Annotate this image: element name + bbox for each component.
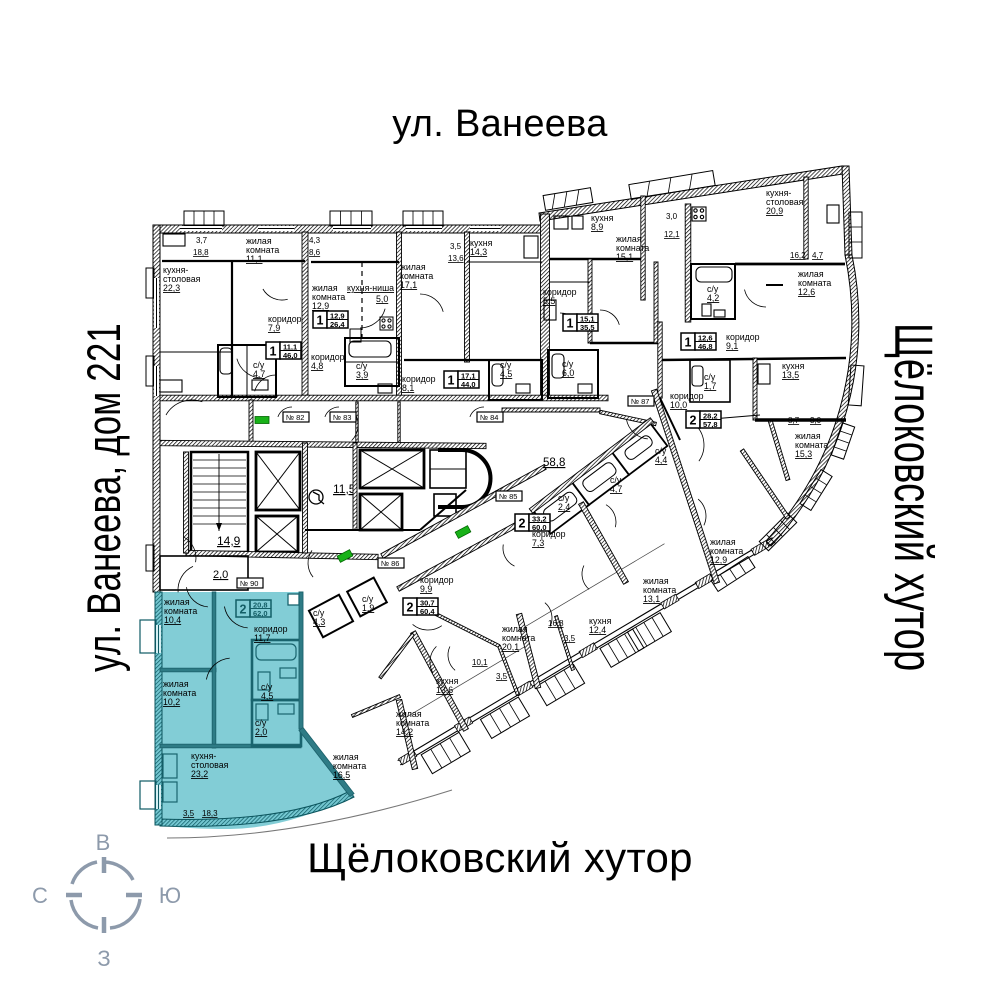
svg-text:18,3: 18,3 — [202, 809, 218, 818]
svg-text:2,0: 2,0 — [213, 569, 228, 581]
svg-text:58,8: 58,8 — [543, 457, 565, 469]
svg-text:6,0: 6,0 — [562, 368, 574, 378]
svg-text:2,4: 2,4 — [558, 502, 570, 512]
svg-text:15,3: 15,3 — [795, 449, 812, 459]
svg-text:12,9: 12,9 — [312, 301, 329, 311]
svg-text:14,2: 14,2 — [396, 727, 413, 737]
svg-text:60,4: 60,4 — [420, 607, 435, 616]
svg-text:1: 1 — [567, 317, 574, 331]
svg-text:Щёлоковский хутор: Щёлоковский хутор — [883, 323, 943, 671]
svg-text:№ 86: № 86 — [381, 559, 399, 568]
svg-text:44,0: 44,0 — [461, 380, 476, 389]
svg-text:20,9: 20,9 — [766, 206, 783, 216]
svg-text:12,4: 12,4 — [589, 625, 606, 635]
svg-text:№ 90: № 90 — [240, 579, 258, 588]
svg-text:60,0: 60,0 — [532, 523, 547, 532]
svg-text:3,0: 3,0 — [666, 212, 678, 221]
svg-text:22,3: 22,3 — [163, 283, 180, 293]
svg-text:В: В — [96, 830, 111, 855]
svg-text:10,2: 10,2 — [163, 697, 180, 707]
svg-text:11,7: 11,7 — [254, 633, 271, 643]
svg-text:З: З — [97, 946, 110, 971]
svg-text:№ 82: № 82 — [286, 413, 304, 422]
svg-text:8,7: 8,7 — [788, 416, 800, 425]
svg-text:8,9: 8,9 — [591, 222, 603, 232]
svg-text:4,5: 4,5 — [261, 691, 273, 701]
svg-text:4,7: 4,7 — [812, 251, 824, 260]
svg-text:3,5: 3,5 — [496, 672, 508, 681]
svg-text:ул. Ванеева, дом 221: ул. Ванеева, дом 221 — [78, 323, 130, 672]
svg-text:Ю: Ю — [159, 883, 181, 908]
svg-text:2,0: 2,0 — [255, 727, 267, 737]
svg-text:2: 2 — [519, 517, 526, 531]
svg-text:12,6: 12,6 — [798, 287, 815, 297]
svg-text:23,2: 23,2 — [191, 769, 208, 779]
svg-text:4,2: 4,2 — [707, 293, 719, 303]
svg-text:3,7: 3,7 — [196, 236, 208, 245]
svg-text:46,8: 46,8 — [698, 342, 713, 351]
svg-text:1: 1 — [685, 336, 692, 350]
svg-text:9,1: 9,1 — [726, 341, 738, 351]
svg-text:2: 2 — [240, 603, 247, 617]
svg-text:Щёлоковский хутор: Щёлоковский хутор — [307, 834, 693, 881]
svg-text:16,5: 16,5 — [333, 770, 350, 780]
svg-text:1: 1 — [448, 374, 455, 388]
svg-text:3,5: 3,5 — [564, 634, 576, 643]
svg-text:13,5: 13,5 — [782, 370, 799, 380]
svg-text:12,9: 12,9 — [710, 555, 727, 565]
svg-text:10,0: 10,0 — [670, 400, 687, 410]
svg-text:5,0: 5,0 — [376, 294, 388, 304]
svg-text:1: 1 — [270, 345, 277, 359]
svg-text:9,9: 9,9 — [420, 584, 432, 594]
svg-text:13,6: 13,6 — [436, 685, 453, 695]
svg-text:12,1: 12,1 — [664, 230, 680, 239]
svg-text:62,0: 62,0 — [253, 609, 268, 618]
svg-text:11,5: 11,5 — [333, 482, 356, 496]
svg-text:1,7: 1,7 — [704, 381, 716, 391]
svg-text:4,5: 4,5 — [500, 369, 512, 379]
svg-text:3,5: 3,5 — [183, 809, 195, 818]
svg-text:3,5: 3,5 — [450, 242, 462, 251]
svg-text:15,1: 15,1 — [616, 252, 633, 262]
svg-text:№ 83: № 83 — [333, 413, 351, 422]
svg-text:2: 2 — [407, 601, 414, 615]
svg-text:57,8: 57,8 — [703, 420, 718, 429]
svg-text:№ 87: № 87 — [631, 397, 649, 406]
svg-text:35,5: 35,5 — [580, 323, 595, 332]
svg-text:7,3: 7,3 — [532, 538, 544, 548]
svg-text:№ 84: № 84 — [480, 413, 498, 422]
svg-text:8,6: 8,6 — [309, 248, 321, 257]
svg-text:С: С — [32, 883, 48, 908]
svg-text:11,1: 11,1 — [246, 254, 263, 264]
svg-text:10,1: 10,1 — [472, 658, 488, 667]
svg-text:2: 2 — [690, 414, 697, 428]
svg-text:26,4: 26,4 — [330, 320, 345, 329]
svg-text:4,7: 4,7 — [610, 484, 622, 494]
svg-text:14,3: 14,3 — [470, 247, 487, 257]
svg-text:4,7: 4,7 — [253, 369, 265, 379]
svg-text:3,9: 3,9 — [356, 370, 368, 380]
svg-text:16,2: 16,2 — [790, 251, 806, 260]
svg-text:13,6: 13,6 — [448, 254, 464, 263]
svg-text:46,0: 46,0 — [283, 351, 298, 360]
svg-text:кухня-ниша: кухня-ниша — [347, 283, 394, 293]
svg-text:17,1: 17,1 — [400, 280, 417, 290]
svg-text:14,9: 14,9 — [217, 534, 241, 548]
svg-text:4,4: 4,4 — [655, 455, 667, 465]
svg-text:7,9: 7,9 — [268, 323, 280, 333]
svg-text:5,5: 5,5 — [543, 296, 555, 306]
svg-text:20,1: 20,1 — [502, 642, 519, 652]
svg-text:18,8: 18,8 — [193, 248, 209, 257]
svg-text:10,4: 10,4 — [164, 615, 181, 625]
svg-text:13,1: 13,1 — [643, 594, 660, 604]
svg-text:3,0: 3,0 — [810, 416, 822, 425]
svg-text:16,8: 16,8 — [548, 619, 564, 628]
svg-text:ул. Ванеева: ул. Ванеева — [392, 103, 608, 145]
svg-text:1: 1 — [317, 314, 324, 328]
svg-text:4,8: 4,8 — [311, 361, 323, 371]
svg-text:8,1: 8,1 — [402, 383, 414, 393]
svg-text:4,3: 4,3 — [309, 236, 321, 245]
svg-text:№ 85: № 85 — [499, 492, 517, 501]
